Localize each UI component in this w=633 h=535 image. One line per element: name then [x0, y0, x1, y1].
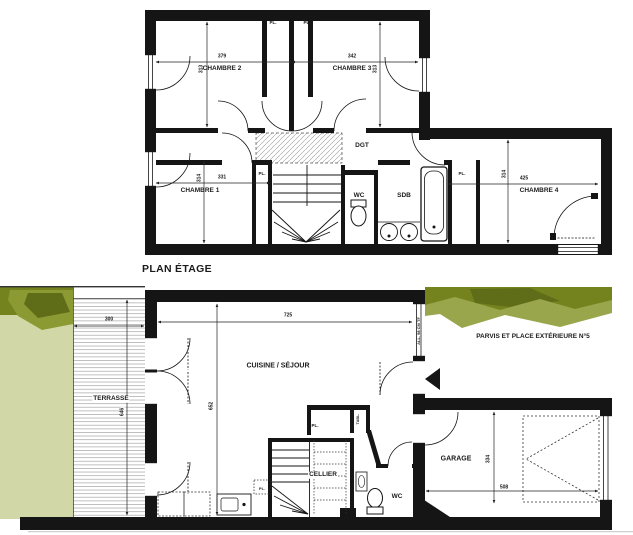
stair-void-hatch — [256, 133, 342, 163]
closet-label: PL. — [258, 172, 265, 177]
upper-plan — [145, 10, 612, 255]
room-label-chambre-4: CHAMBRE 4 — [520, 188, 559, 195]
dim-chambre1-height: 314 — [198, 174, 203, 182]
closet-label: PL. — [269, 21, 276, 26]
room-label-cuisine-sejour: CUISINE / SÉJOUR — [246, 363, 309, 370]
room-label-chambre-2: CHAMBRE 2 — [203, 66, 242, 73]
dim-garage-width: 508 — [500, 486, 508, 491]
area-label-parvis: PARVIS ET PLACE EXTÉRIEURE N°5 — [476, 334, 590, 341]
door-frame-block — [550, 233, 556, 240]
room-label-dgt: DGT — [355, 143, 369, 150]
room-label-garage: GARAGE — [441, 456, 472, 463]
dim-chambre3-width: 342 — [348, 55, 356, 60]
electrical-board-label: TABL. — [357, 414, 361, 425]
double-washbasin — [378, 222, 420, 241]
kitchen-sink — [217, 494, 251, 515]
dim-chambre4-height: 314 — [503, 170, 508, 178]
room-label-wc-ground: WC — [392, 494, 403, 501]
upper-staircase — [272, 165, 341, 242]
upper-plan-windows — [145, 53, 600, 254]
ground-wc-fixtures — [356, 472, 383, 514]
garage-door-swing — [523, 416, 599, 502]
dim-chambre4-width: 425 — [520, 177, 528, 182]
dim-chambre3-height: 313 — [374, 65, 379, 73]
room-label-terrasse: TERRASSE — [92, 396, 129, 403]
dim-terrasse-height: 646 — [121, 407, 126, 417]
closet-label: PL. — [303, 21, 310, 26]
bathtub — [421, 167, 447, 241]
entrance-arrow — [425, 368, 440, 390]
floorplan-canvas: CHAMBRE 2 379 313 PL. PL. CHAMBRE 3 342 … — [0, 0, 633, 535]
closet-label: PL. — [311, 424, 318, 429]
upper-plan-walls — [145, 10, 612, 255]
floorplan-linework — [0, 0, 633, 535]
dim-cuisine-height: 652 — [210, 402, 215, 410]
dim-chambre1-width: 331 — [218, 176, 226, 181]
dim-cuisine-width: 725 — [284, 314, 292, 319]
window-sill-note: ALL. 98 CM TF — [417, 317, 421, 345]
door-frame-block — [591, 193, 598, 199]
closet-label: PL. — [458, 172, 465, 177]
room-label-cellier: CELLIER — [308, 472, 338, 479]
dim-chambre2-width: 379 — [218, 55, 226, 60]
closet-label: PL. — [259, 488, 265, 492]
room-label-chambre-3: CHAMBRE 3 — [333, 66, 372, 73]
dim-garage-height: 334 — [487, 455, 492, 463]
dim-chambre2-height: 313 — [200, 65, 205, 73]
upper-toilet — [351, 200, 366, 226]
room-label-sdb: SDB — [397, 193, 411, 200]
ground-baseline — [28, 531, 633, 532]
plan-title: PLAN ÉTAGE — [142, 264, 212, 275]
kitchen-units — [158, 480, 271, 516]
ground-staircase — [272, 440, 310, 517]
room-label-wc-upper: WC — [354, 193, 365, 200]
parvis-hedge — [425, 287, 612, 328]
dim-terrasse-width: 300 — [105, 318, 113, 323]
room-label-chambre-1: CHAMBRE 1 — [181, 188, 220, 195]
